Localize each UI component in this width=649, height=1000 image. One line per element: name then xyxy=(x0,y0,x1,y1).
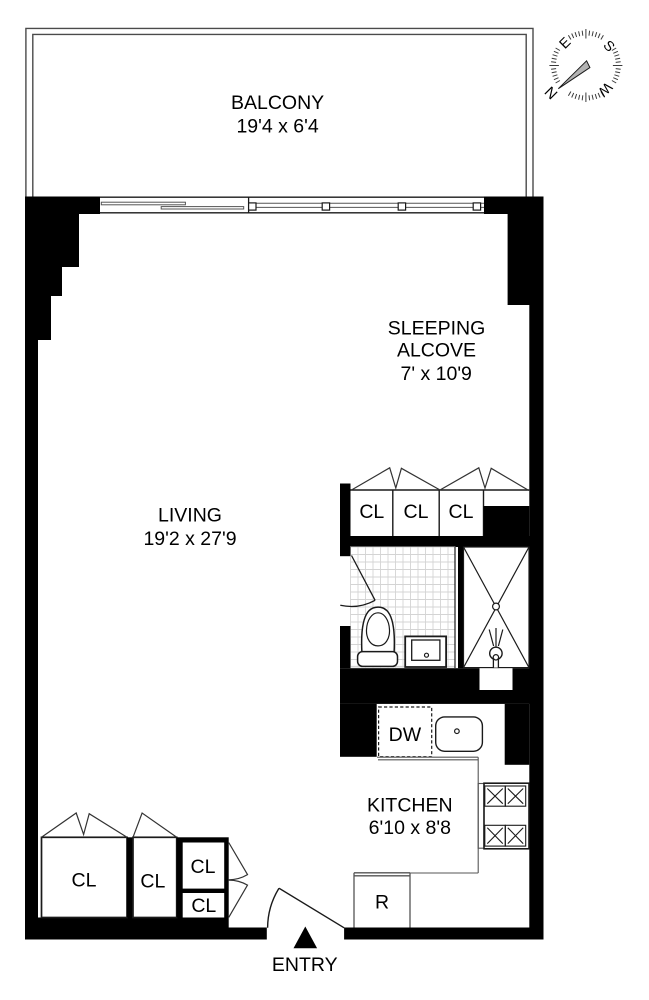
svg-text:KITCHEN: KITCHEN xyxy=(367,794,453,816)
svg-text:SLEEPING: SLEEPING xyxy=(388,318,486,340)
svg-text:CL: CL xyxy=(140,871,165,893)
svg-text:CL: CL xyxy=(72,870,97,892)
svg-text:R: R xyxy=(375,892,389,914)
svg-text:19'4 x 6'4: 19'4 x 6'4 xyxy=(236,116,318,138)
svg-text:LIVING: LIVING xyxy=(158,505,222,527)
svg-text:CL: CL xyxy=(404,501,429,523)
svg-text:DW: DW xyxy=(389,724,422,746)
svg-text:7' x 10'9: 7' x 10'9 xyxy=(400,363,471,385)
svg-text:CL: CL xyxy=(449,501,474,523)
svg-text:CL: CL xyxy=(191,856,216,878)
svg-text:BALCONY: BALCONY xyxy=(231,92,324,114)
svg-text:6'10 x 8'8: 6'10 x 8'8 xyxy=(369,817,451,839)
svg-text:CL: CL xyxy=(191,895,216,917)
svg-text:ALCOVE: ALCOVE xyxy=(397,340,476,362)
svg-text:ENTRY: ENTRY xyxy=(272,954,338,976)
svg-text:19'2 x 27'9: 19'2 x 27'9 xyxy=(143,528,236,550)
svg-text:CL: CL xyxy=(359,501,384,523)
